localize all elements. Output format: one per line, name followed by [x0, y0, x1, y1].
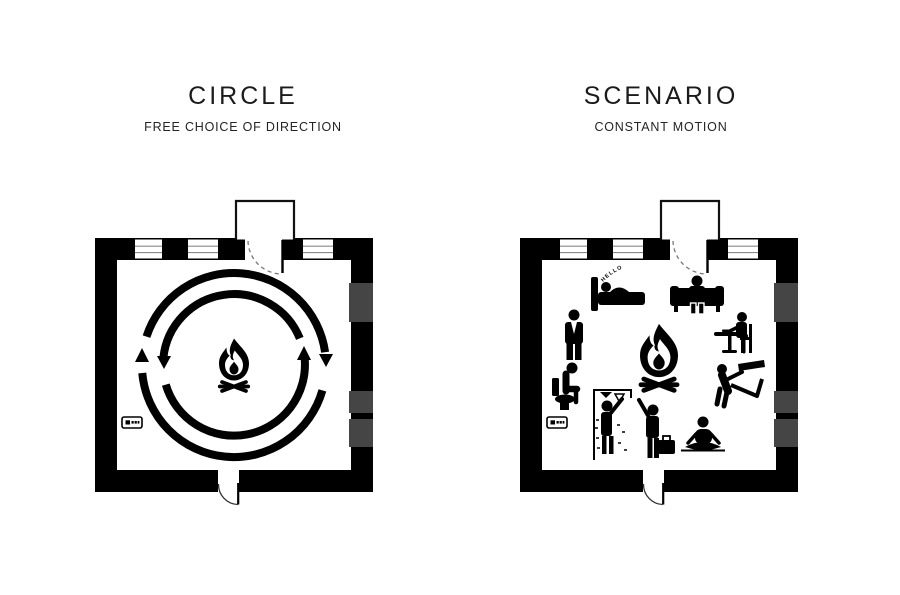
circle-floor-plan	[95, 201, 373, 505]
scenario-floor-plan: HELLO	[520, 201, 798, 505]
floor-plans-canvas: HELLO	[0, 0, 900, 595]
